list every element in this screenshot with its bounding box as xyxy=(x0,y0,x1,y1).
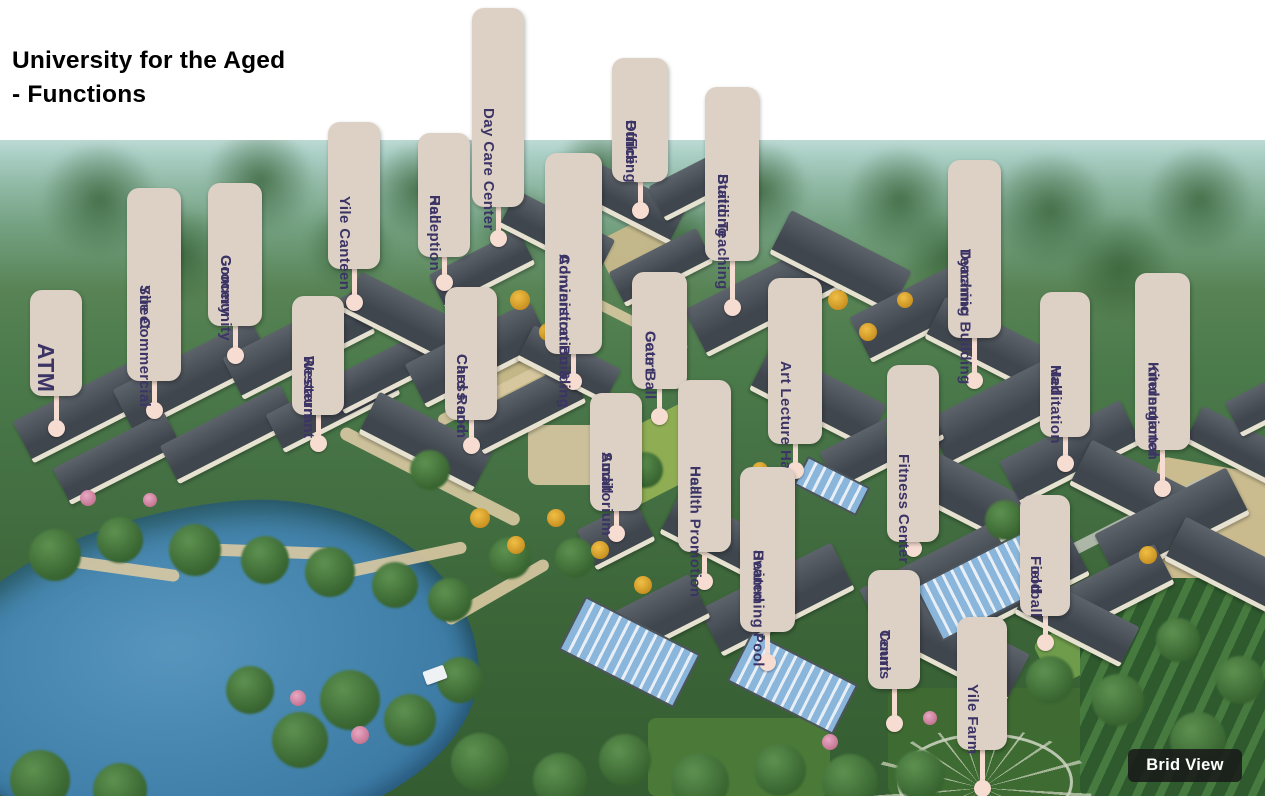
tree xyxy=(97,517,143,563)
blossom-tree xyxy=(923,711,937,725)
tree xyxy=(451,733,509,791)
tree xyxy=(1216,656,1264,704)
lake xyxy=(0,477,494,796)
tree xyxy=(985,500,1025,540)
autumn-tree xyxy=(510,290,530,310)
tree xyxy=(895,750,945,796)
autumn-tree xyxy=(897,292,913,308)
tree xyxy=(822,754,878,796)
blossom-tree xyxy=(143,493,157,507)
tree xyxy=(1156,618,1200,662)
ground-patch xyxy=(528,425,620,485)
tree xyxy=(599,734,651,786)
tree xyxy=(754,744,806,796)
forest-blob xyxy=(205,140,315,235)
tree xyxy=(533,753,587,796)
view-badge-label: Brid View xyxy=(1146,756,1224,775)
tree xyxy=(384,694,436,746)
autumn-tree xyxy=(752,462,768,478)
forest-blob xyxy=(130,205,230,305)
autumn-tree xyxy=(828,290,848,310)
autumn-tree xyxy=(802,372,818,388)
blossom-tree xyxy=(80,490,96,506)
tree xyxy=(305,547,355,597)
blossom-tree xyxy=(351,726,369,744)
blossom-tree xyxy=(290,690,306,706)
tree xyxy=(241,536,289,584)
campus-aerial-photo: Brid View xyxy=(0,140,1265,796)
forest-blob xyxy=(305,203,395,293)
tree xyxy=(958,618,1002,662)
tree xyxy=(320,670,380,730)
tree xyxy=(555,538,595,578)
tree xyxy=(410,450,450,490)
tree xyxy=(1092,674,1144,726)
tree xyxy=(886,411,924,449)
blossom-tree xyxy=(822,734,838,750)
tree xyxy=(428,578,472,622)
page-title-line1: University for the Aged xyxy=(12,44,285,78)
tree xyxy=(627,452,663,488)
tree xyxy=(169,524,221,576)
tree xyxy=(742,538,782,578)
autumn-tree xyxy=(507,536,525,554)
autumn-tree xyxy=(470,508,490,528)
slide: University for the Aged - Functions Brid… xyxy=(0,0,1265,796)
view-badge: Brid View xyxy=(1128,749,1242,782)
tree xyxy=(29,529,81,581)
page-title: University for the Aged - Functions xyxy=(12,44,285,112)
autumn-tree xyxy=(634,576,652,594)
tree xyxy=(226,666,274,714)
autumn-tree xyxy=(539,323,557,341)
tree xyxy=(682,412,718,448)
tree xyxy=(272,712,328,768)
page-title-line2: - Functions xyxy=(12,78,285,112)
tree xyxy=(372,562,418,608)
autumn-tree xyxy=(591,541,609,559)
autumn-tree xyxy=(547,509,565,527)
tree xyxy=(1026,656,1074,704)
forest-blob xyxy=(1065,213,1175,323)
autumn-tree xyxy=(859,323,877,341)
autumn-tree xyxy=(1139,546,1157,564)
tree xyxy=(437,657,483,703)
